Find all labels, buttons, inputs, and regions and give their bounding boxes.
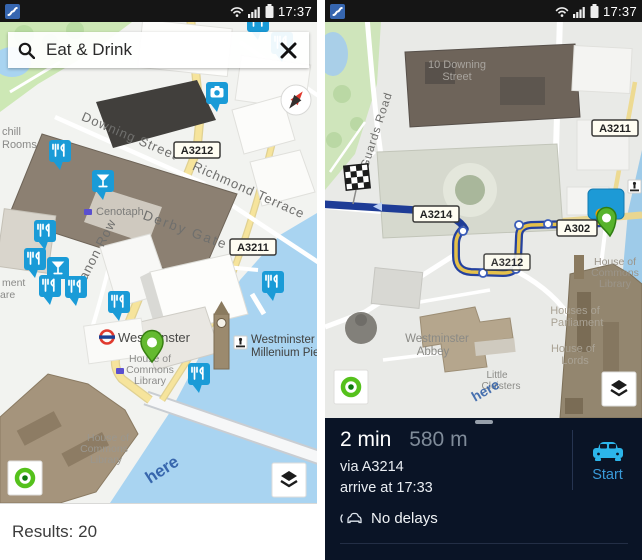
- label-churchill: chill: [2, 126, 21, 138]
- search-icon: [18, 42, 35, 59]
- route-via: via A3214: [340, 459, 468, 475]
- left-screen: 17:37: [0, 0, 317, 560]
- road-badge-a3211: A3211: [592, 120, 638, 136]
- right-screen: 17:37: [325, 0, 642, 560]
- badge-a3211-text: A3211: [237, 242, 269, 254]
- label-lords-2: Lords: [561, 355, 589, 367]
- badge-a3211-text: A3211: [599, 123, 631, 135]
- clock: 17:37: [278, 4, 312, 19]
- road-badge-a302: A302: [557, 220, 597, 236]
- signal-icon: [248, 5, 261, 18]
- battery-icon: [265, 4, 274, 19]
- map-canvas-left[interactable]: Downing Street Richmond Terrace Canon Ro…: [0, 22, 317, 503]
- wifi-icon: [230, 5, 244, 17]
- pier-icon: [234, 336, 247, 349]
- road-badge-a3214: A3214: [413, 206, 459, 222]
- cenotaph-icon: [84, 209, 92, 215]
- route-distance: 580 m: [409, 428, 467, 451]
- label-abbey-1: Westminster: [405, 333, 469, 345]
- label-pier-1: Westminster: [251, 334, 315, 346]
- battery-icon: [590, 4, 599, 19]
- road-badge-a3211: A3211: [230, 239, 276, 255]
- search-input[interactable]: [44, 39, 277, 61]
- route-arrival: arrive at 17:33: [340, 480, 468, 496]
- gps-locate-button[interactable]: [334, 370, 368, 404]
- traffic-car-icon: [340, 511, 362, 526]
- here-app-icon: [330, 4, 345, 19]
- results-bar: Results: 20: [0, 503, 317, 560]
- traffic-status: No delays: [371, 510, 438, 527]
- label-parliament-clip-2: are: [0, 289, 15, 301]
- label-abbey-2: Abbey: [417, 346, 450, 358]
- start-navigation-button[interactable]: Start: [573, 428, 642, 494]
- badge-a3214-text: A3214: [420, 209, 453, 221]
- map-canvas-right[interactable]: 10 Downing Street se Guards Road House o…: [325, 22, 642, 418]
- here-app-icon: [5, 4, 20, 19]
- results-count: Results: 20: [12, 522, 97, 542]
- close-icon[interactable]: [277, 39, 299, 61]
- label-10-downing-2: Street: [442, 71, 471, 83]
- drive-car-icon: [591, 439, 625, 463]
- signal-icon: [573, 5, 586, 18]
- label-parliament-1: Houses of: [550, 305, 600, 317]
- label-lords-1: House of: [551, 343, 596, 355]
- gps-locate-button[interactable]: [8, 461, 42, 495]
- label-parliament-2: Parliament: [551, 317, 604, 329]
- wifi-icon: [555, 5, 569, 17]
- status-bar: 17:37: [0, 0, 317, 22]
- label-commons-3: Library: [599, 278, 632, 290]
- label-10-downing-1: 10 Downing: [428, 59, 486, 71]
- destination-flag: [344, 164, 370, 190]
- drag-handle[interactable]: [475, 420, 493, 424]
- search-bar[interactable]: [8, 32, 309, 68]
- label-cenotaph: Cenotaph: [96, 206, 144, 218]
- badge-a3212-text: A3212: [491, 257, 523, 269]
- route-duration: 2 min: [340, 428, 391, 451]
- route-info-panel: 2 min 580 m via A3214 arrive at 17:33 No…: [325, 418, 642, 560]
- label-pier-2: Millenium Pier: [251, 347, 317, 359]
- start-button-label: Start: [592, 467, 623, 483]
- label-churchill-2: Rooms: [2, 139, 37, 151]
- badge-a3212-text: A3212: [181, 145, 213, 157]
- road-badge-a3212: A3212: [484, 254, 530, 270]
- layers-button[interactable]: [602, 372, 636, 406]
- layers-button[interactable]: [272, 463, 306, 497]
- clock: 17:37: [603, 4, 637, 19]
- road-badge-a3212: A3212: [174, 142, 220, 158]
- label-commons-3: Library: [134, 375, 167, 387]
- label-commons-b3: Library: [90, 454, 123, 466]
- status-bar: 17:37: [325, 0, 642, 22]
- badge-a302-text: A302: [564, 223, 590, 235]
- compass-button[interactable]: [281, 85, 311, 115]
- label-parliament-clip: ment: [2, 277, 25, 289]
- library-icon: [116, 368, 124, 374]
- pier-icon: [628, 180, 641, 193]
- panel-divider-bottom: [340, 543, 628, 544]
